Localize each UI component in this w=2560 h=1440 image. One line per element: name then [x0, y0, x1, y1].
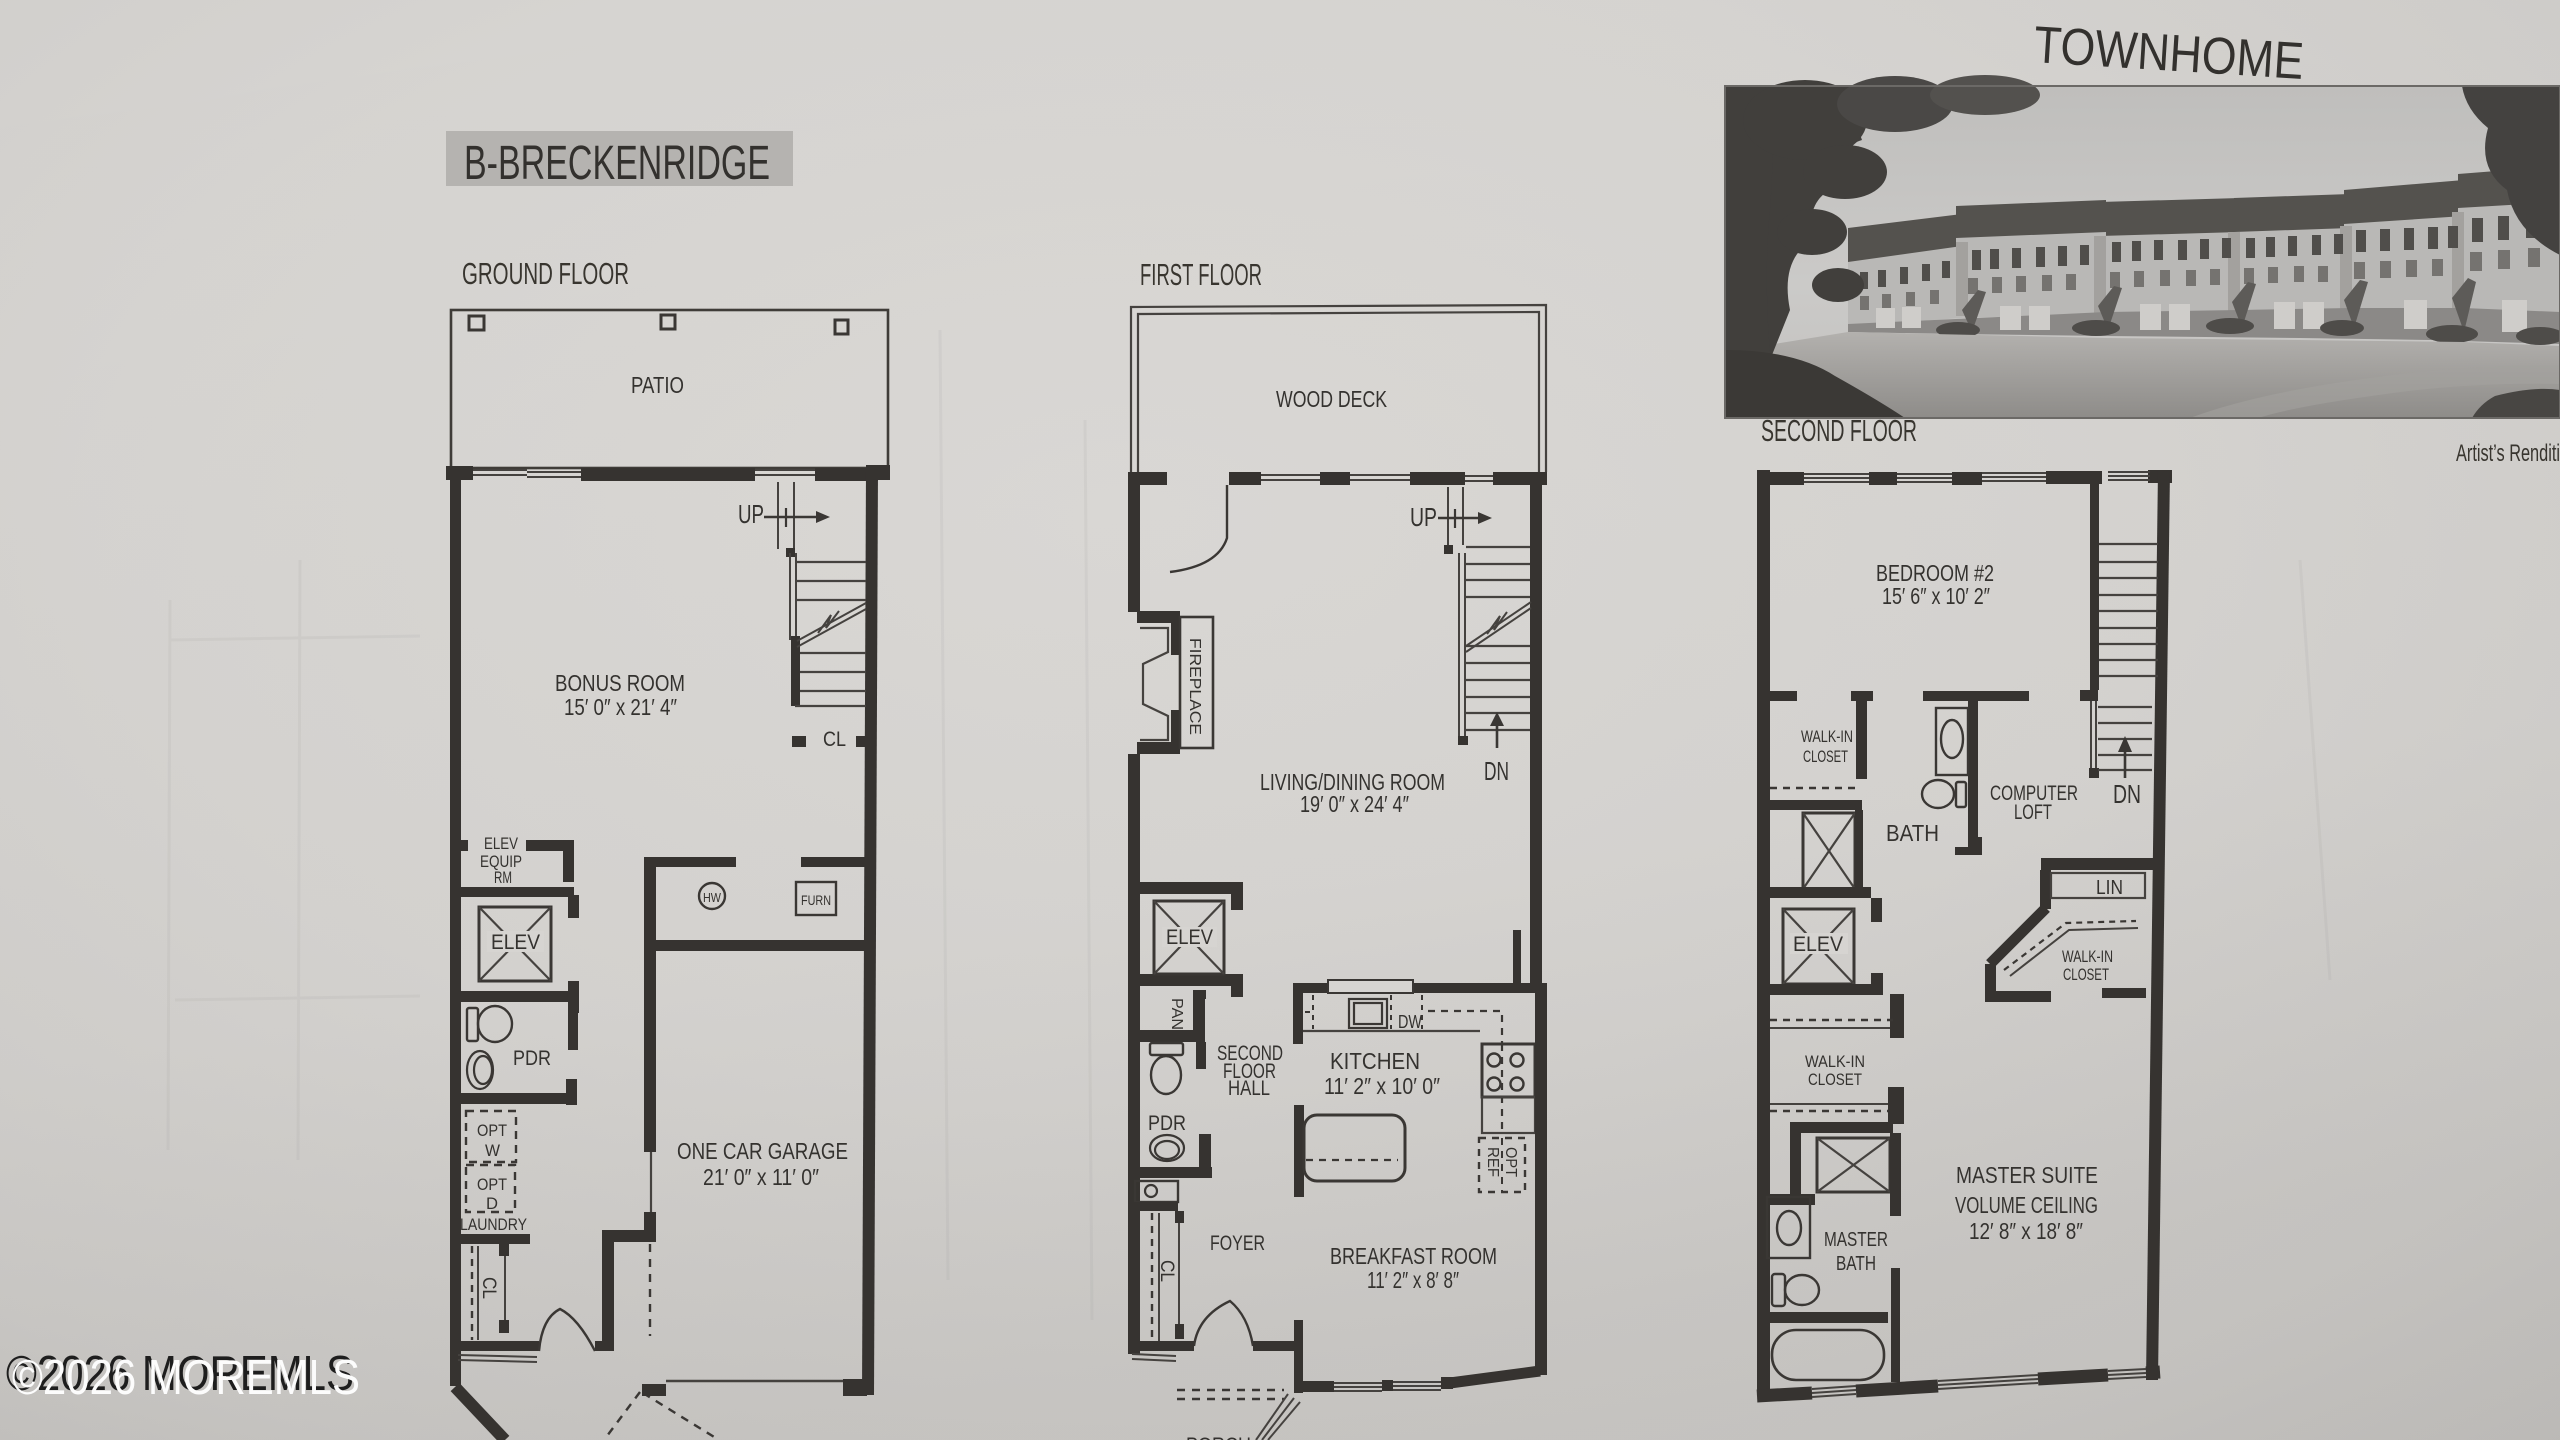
svg-text:UP: UP: [1410, 502, 1437, 532]
svg-text:OPT: OPT: [1502, 1147, 1519, 1177]
svg-text:BATH: BATH: [1886, 820, 1939, 846]
svg-text:CLOSET: CLOSET: [1808, 1070, 1862, 1089]
svg-text:11′ 2″ x 10′ 0″: 11′ 2″ x 10′ 0″: [1324, 1073, 1440, 1099]
svg-text:GROUND FLOOR: GROUND FLOOR: [462, 256, 629, 291]
svg-text:CL: CL: [478, 1277, 499, 1299]
svg-text:HW: HW: [703, 890, 722, 905]
svg-text:ELEV: ELEV: [484, 834, 519, 853]
svg-text:CL: CL: [823, 728, 846, 751]
svg-text:RM: RM: [494, 868, 512, 887]
svg-text:LOFT: LOFT: [2014, 801, 2052, 824]
svg-text:BATH: BATH: [1836, 1253, 1876, 1275]
svg-text:CL: CL: [1156, 1260, 1177, 1282]
svg-text:DW: DW: [1398, 1012, 1422, 1032]
svg-text:MASTER SUITE: MASTER SUITE: [1956, 1162, 2098, 1188]
svg-text:FOYER: FOYER: [1210, 1232, 1265, 1255]
svg-text:PDR: PDR: [1148, 1112, 1186, 1135]
svg-text:BREAKFAST ROOM: BREAKFAST ROOM: [1330, 1243, 1497, 1269]
svg-text:LIN: LIN: [2096, 877, 2123, 899]
svg-text:FIRST FLOOR: FIRST FLOOR: [1140, 257, 1262, 292]
svg-text:B-BRECKENRIDGE: B-BRECKENRIDGE: [464, 137, 770, 190]
svg-text:SECOND FLOOR: SECOND FLOOR: [1761, 413, 1917, 448]
svg-text:Artist’s Renditi: Artist’s Renditi: [2456, 440, 2560, 467]
svg-text:W: W: [485, 1141, 500, 1160]
svg-text:©2026 MOREMLS: ©2026 MOREMLS: [12, 1351, 360, 1405]
svg-text:OPT: OPT: [477, 1121, 507, 1140]
svg-text:WALK-IN: WALK-IN: [1805, 1052, 1865, 1071]
svg-text:WOOD DECK: WOOD DECK: [1276, 386, 1388, 412]
svg-text:LAUNDRY: LAUNDRY: [460, 1215, 527, 1234]
svg-text:15′ 6″ x 10′ 2″: 15′ 6″ x 10′ 2″: [1882, 583, 1990, 609]
svg-text:PORCH: PORCH: [1186, 1434, 1251, 1440]
svg-text:UP: UP: [738, 499, 764, 529]
svg-text:CLOSET: CLOSET: [2063, 965, 2109, 984]
svg-text:WALK-IN: WALK-IN: [1801, 727, 1853, 746]
svg-text:PATIO: PATIO: [631, 372, 684, 398]
svg-text:WALK-IN: WALK-IN: [2062, 947, 2113, 966]
svg-text:PDR: PDR: [513, 1047, 551, 1070]
svg-text:VOLUME CEILING: VOLUME CEILING: [1955, 1192, 2098, 1218]
svg-text:CLOSET: CLOSET: [1803, 747, 1848, 766]
svg-text:PAN: PAN: [1168, 998, 1185, 1030]
svg-text:OPT: OPT: [477, 1175, 507, 1194]
svg-text:FIREPLACE: FIREPLACE: [1186, 638, 1203, 735]
svg-text:12′ 8″ x 18′ 8″: 12′ 8″ x 18′ 8″: [1969, 1218, 2083, 1244]
svg-text:21′ 0″ x 11′ 0″: 21′ 0″ x 11′ 0″: [703, 1164, 819, 1190]
svg-text:D: D: [486, 1194, 498, 1213]
svg-text:ELEV: ELEV: [1166, 926, 1213, 949]
svg-text:BONUS ROOM: BONUS ROOM: [555, 670, 685, 696]
svg-text:11′ 2″ x 8′ 8″: 11′ 2″ x 8′ 8″: [1367, 1267, 1459, 1293]
svg-text:MASTER: MASTER: [1824, 1229, 1888, 1251]
svg-text:ONE CAR GARAGE: ONE CAR GARAGE: [677, 1138, 848, 1164]
svg-text:ELEV: ELEV: [1793, 933, 1843, 956]
svg-text:ELEV: ELEV: [491, 931, 540, 954]
svg-text:KITCHEN: KITCHEN: [1330, 1048, 1420, 1074]
svg-text:19′ 0″ x 24′ 4″: 19′ 0″ x 24′ 4″: [1300, 791, 1409, 817]
svg-text:HALL: HALL: [1228, 1077, 1270, 1100]
svg-text:FURN: FURN: [801, 892, 831, 908]
svg-text:15′ 0″ x 21′ 4″: 15′ 0″ x 21′ 4″: [564, 694, 677, 720]
svg-text:REF: REF: [1484, 1147, 1501, 1177]
svg-text:DN: DN: [2113, 779, 2141, 809]
svg-text:DN: DN: [1484, 756, 1509, 786]
